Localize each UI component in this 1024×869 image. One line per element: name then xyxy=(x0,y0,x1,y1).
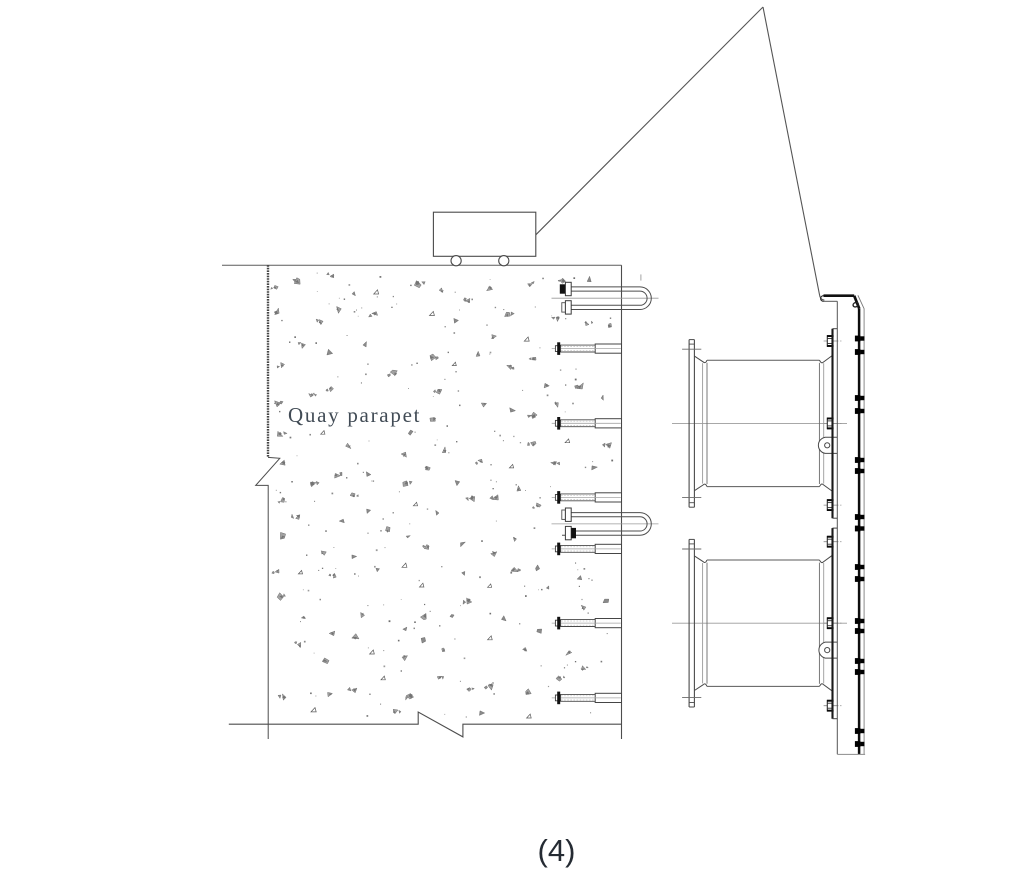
svg-text:Quay parapet: Quay parapet xyxy=(288,403,421,427)
svg-text:(4): (4) xyxy=(538,833,576,868)
